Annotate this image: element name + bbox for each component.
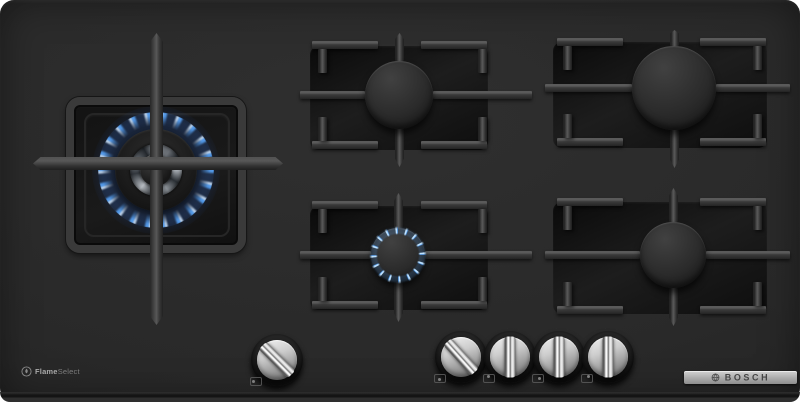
knob-1[interactable] [253,336,301,384]
grate-bar [425,251,532,259]
grate-bar [421,141,487,149]
knob-handle [554,337,565,378]
grate-bar [478,49,487,73]
bosch-anchor-icon [711,373,720,382]
flame-icon [21,366,32,377]
simmer-flame-ring [364,221,432,289]
grate-bar [753,46,762,70]
burner-position-icon [483,374,495,383]
grate-bar [563,282,572,306]
grate-bar [700,138,766,146]
grate-bar [753,206,762,230]
knob-4[interactable] [535,333,583,381]
grate-bar [478,277,487,301]
burner-cap-bottom-right [640,222,706,288]
product-image: FlameSelect BOSCH [0,0,800,402]
grate-bar [563,206,572,230]
grate-bar [478,209,487,233]
grate-bar [716,84,790,92]
burner-cap-top-middle [365,61,433,129]
grate-bar [312,201,378,209]
knob-3[interactable] [486,333,534,381]
grate-bar [700,306,766,314]
grate-bar [312,141,378,149]
grate-bar [563,46,572,70]
grate-bar [318,209,327,233]
hob-front-edge [0,392,800,402]
burner-position-icon [250,377,262,386]
bosch-badge: BOSCH [684,371,797,384]
grate-bar [545,84,632,92]
grate-bar [753,114,762,138]
grate-bar [557,138,623,146]
grate-bar [557,38,623,46]
burner-position-icon [581,374,593,383]
flameselect-label: FlameSelect [35,367,80,376]
grate-bar [563,114,572,138]
grate-bar [557,306,623,314]
grate-bar [421,201,487,209]
knob-handle [505,337,516,378]
grate-bar [433,91,532,99]
grate-bar [706,251,790,259]
grate-bar [300,91,365,99]
grate-bar [318,117,327,141]
burner-position-icon [532,374,544,383]
grate-bar [318,277,327,301]
grate-bar [700,198,766,206]
grate-bar [421,41,487,49]
wok-pan-support-horizontal [33,157,283,170]
brand-name: BOSCH [725,372,771,382]
knob-5[interactable] [584,333,632,381]
grate-bar [753,282,762,306]
burner-position-icon [434,374,446,383]
grate-bar [312,301,378,309]
knob-handle [603,337,614,378]
grate-bar [312,41,378,49]
grate-bar [421,301,487,309]
grate-bar [318,49,327,73]
grate-bar [478,117,487,141]
grate-bar [545,251,640,259]
grate-bar [300,251,371,259]
burner-cap-top-right [632,46,716,130]
knob-2[interactable] [437,333,485,381]
grate-bar [700,38,766,46]
grate-bar [557,198,623,206]
wok-pan-support-vertical [150,33,163,325]
flameselect-badge: FlameSelect [21,366,80,377]
